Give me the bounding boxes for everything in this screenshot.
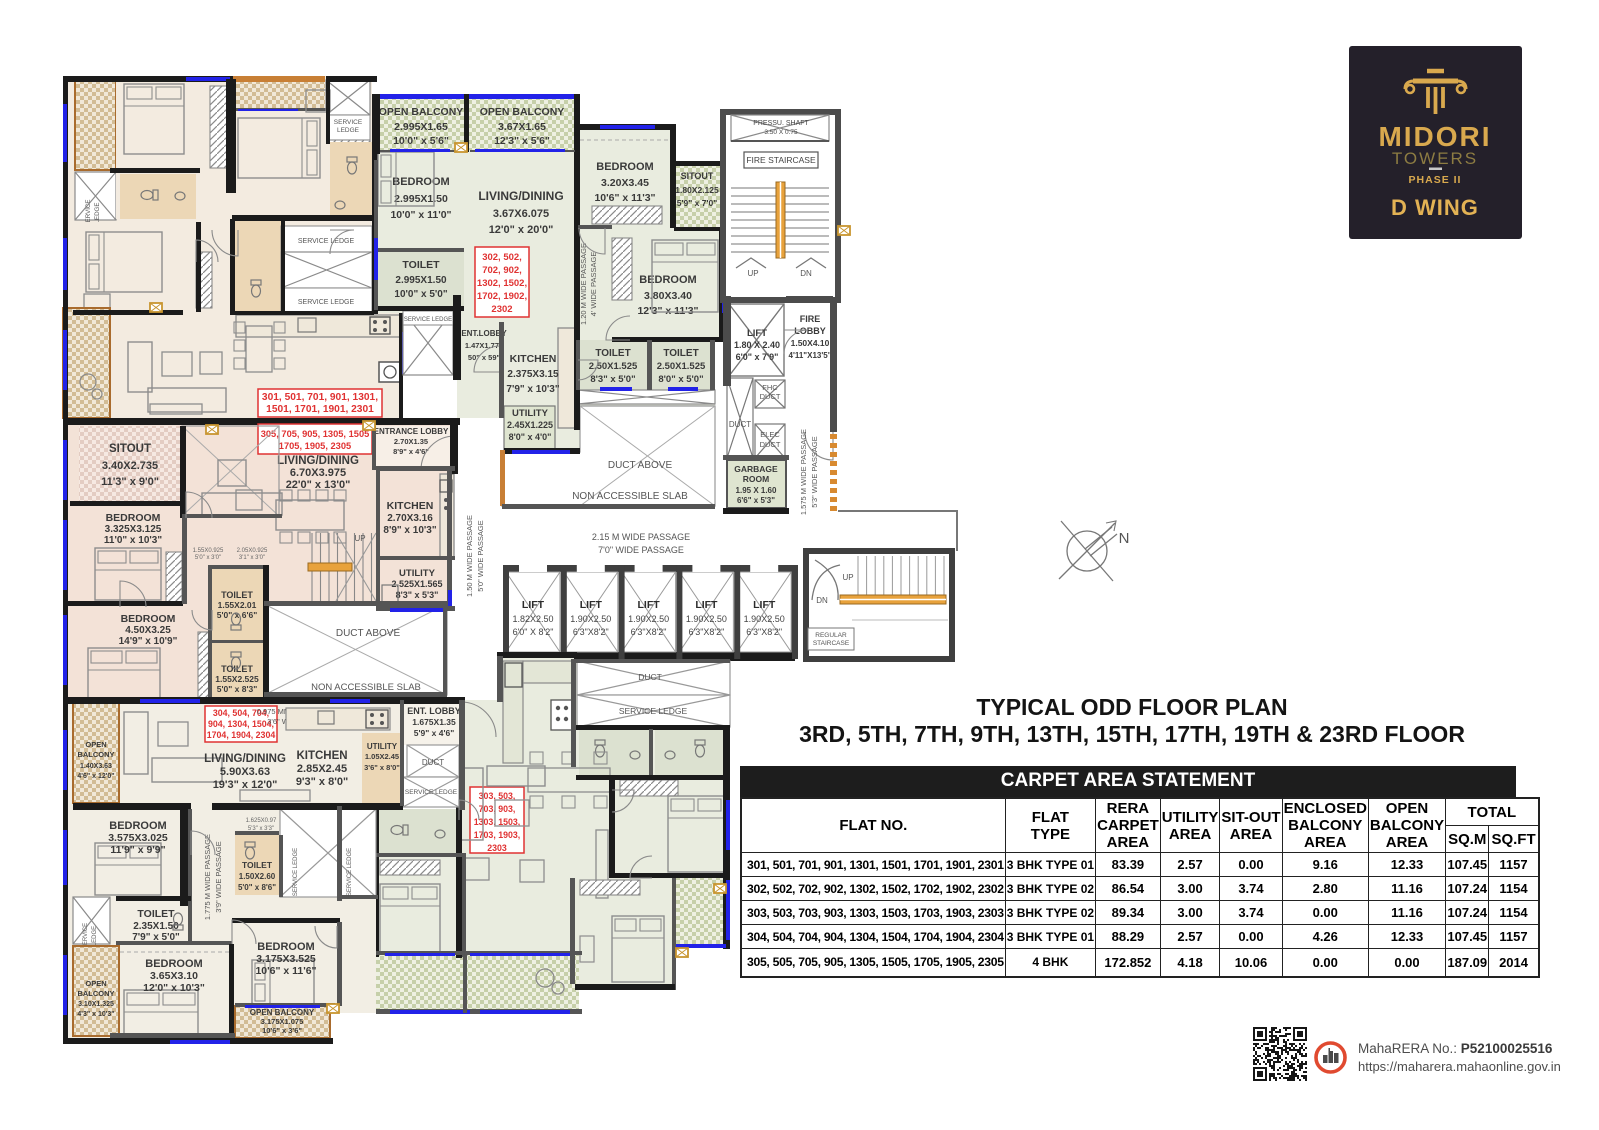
svg-text:11'3" x 9'0": 11'3" x 9'0"	[101, 476, 159, 488]
svg-text:6'0" x 7'9": 6'0" x 7'9"	[736, 352, 779, 362]
svg-text:3.175X1.075: 3.175X1.075	[261, 1017, 304, 1026]
svg-text:SERVICE LEDGE: SERVICE LEDGE	[405, 789, 458, 796]
svg-text:12'3" x 5'6": 12'3" x 5'6"	[494, 135, 550, 147]
svg-text:5'0" x 8'3": 5'0" x 8'3"	[217, 684, 257, 694]
svg-text:STAIRCASE: STAIRCASE	[813, 640, 850, 647]
svg-text:LOBBY: LOBBY	[794, 326, 826, 336]
svg-text:1.50 M WIDE PASSAGE: 1.50 M WIDE PASSAGE	[465, 515, 474, 597]
svg-text:TOWERS: TOWERS	[1392, 149, 1478, 168]
svg-text:BEDROOM: BEDROOM	[145, 958, 202, 970]
svg-text:DUCT: DUCT	[760, 440, 781, 449]
svg-text:1.20 M WIDE PASSAGE: 1.20 M WIDE PASSAGE	[579, 243, 588, 325]
svg-text:5'0" WIDE PASSAGE: 5'0" WIDE PASSAGE	[476, 520, 485, 591]
svg-text:UTILITY: UTILITY	[512, 408, 549, 419]
svg-text:1.90X2.50: 1.90X2.50	[570, 614, 611, 624]
svg-text:1.95 X 1.60: 1.95 X 1.60	[736, 486, 777, 495]
svg-text:DUCT: DUCT	[760, 392, 781, 401]
svg-text:4'3" x 10'3": 4'3" x 10'3"	[77, 1011, 114, 1018]
svg-text:10'6" x 11'6": 10'6" x 11'6"	[255, 965, 316, 977]
svg-text:KITCHEN: KITCHEN	[387, 500, 434, 512]
svg-text:1703, 1903,: 1703, 1903,	[474, 830, 520, 840]
svg-text:LIVING/DINING: LIVING/DINING	[277, 455, 359, 467]
svg-text:1.40X3.63: 1.40X3.63	[80, 763, 112, 770]
svg-text:BEDROOM: BEDROOM	[392, 176, 449, 188]
svg-text:2.35X1.50: 2.35X1.50	[133, 921, 179, 932]
svg-text:3.40X2.735: 3.40X2.735	[102, 460, 158, 472]
svg-text:LIVING/DINING: LIVING/DINING	[478, 189, 563, 203]
svg-text:12'0" x 10'3": 12'0" x 10'3"	[143, 982, 205, 994]
svg-text:N: N	[1119, 530, 1130, 547]
svg-text:12'0" x 20'0": 12'0" x 20'0"	[489, 224, 554, 236]
svg-text:DUCT ABOVE: DUCT ABOVE	[608, 460, 673, 471]
svg-text:LIFT: LIFT	[695, 599, 718, 611]
svg-text:7'0" WIDE PASSAGE: 7'0" WIDE PASSAGE	[598, 545, 684, 555]
svg-text:8'9" x 4'6": 8'9" x 4'6"	[393, 447, 429, 456]
svg-text:1.47X1.775: 1.47X1.775	[465, 341, 503, 350]
svg-text:1.80X2.125: 1.80X2.125	[675, 185, 719, 195]
svg-text:1.90X2.50: 1.90X2.50	[686, 614, 727, 624]
svg-text:1.675X1.35: 1.675X1.35	[412, 717, 456, 727]
svg-text:DUCT: DUCT	[729, 420, 751, 429]
svg-text:LIVING/DINING: LIVING/DINING	[204, 753, 286, 765]
svg-text:LIFT: LIFT	[580, 599, 603, 611]
svg-text:2.15 M WIDE PASSAGE: 2.15 M WIDE PASSAGE	[592, 532, 690, 542]
svg-text:REGULAR: REGULAR	[815, 632, 847, 639]
svg-text:1.82X2.50: 1.82X2.50	[512, 614, 553, 624]
svg-text:19'3" x 12'0": 19'3" x 12'0"	[213, 779, 278, 791]
svg-text:BEDROOM: BEDROOM	[121, 613, 176, 625]
svg-text:LIFT: LIFT	[638, 599, 661, 611]
svg-text:BEDROOM: BEDROOM	[109, 820, 166, 832]
svg-text:2302: 2302	[491, 304, 512, 315]
svg-text:6'3"X8'2": 6'3"X8'2"	[573, 627, 609, 637]
svg-text:LIFT: LIFT	[753, 599, 776, 611]
svg-text:3'1" x 3'0": 3'1" x 3'0"	[239, 555, 265, 561]
svg-text:DUCT ABOVE: DUCT ABOVE	[336, 628, 401, 639]
svg-text:6'3"X8'2": 6'3"X8'2"	[746, 627, 782, 637]
svg-text:FHC: FHC	[762, 383, 778, 392]
svg-text:11'9" x 9'9": 11'9" x 9'9"	[110, 844, 165, 856]
svg-text:5'9" x 7'0": 5'9" x 7'0"	[677, 198, 717, 208]
svg-text:10'0" x 5'0": 10'0" x 5'0"	[394, 289, 447, 300]
svg-text:3.67X1.65: 3.67X1.65	[498, 121, 546, 133]
svg-text:SERVICE LEDGE: SERVICE LEDGE	[298, 238, 355, 245]
svg-text:10'0" x 11'0": 10'0" x 11'0"	[390, 209, 451, 221]
svg-text:GARBAGE: GARBAGE	[734, 464, 778, 474]
svg-text:3.20X3.45: 3.20X3.45	[601, 177, 649, 189]
svg-text:ELEC: ELEC	[760, 430, 780, 439]
svg-text:50" x 59": 50" x 59"	[468, 353, 501, 362]
svg-text:TOILET: TOILET	[221, 590, 253, 600]
svg-text:8'9" x 10'3": 8'9" x 10'3"	[383, 525, 436, 536]
svg-text:302, 502,: 302, 502,	[482, 252, 522, 263]
svg-text:LEDGE: LEDGE	[94, 203, 101, 224]
svg-text:5'3" WIDE PASSAGE: 5'3" WIDE PASSAGE	[810, 436, 819, 507]
svg-text:305, 705, 905, 1305, 1505: 305, 705, 905, 1305, 1505	[261, 429, 370, 439]
svg-text:NON ACCESSIBLE SLAB: NON ACCESSIBLE SLAB	[311, 682, 421, 693]
svg-text:UP: UP	[747, 269, 758, 278]
svg-text:UTILITY: UTILITY	[367, 742, 398, 751]
svg-text:12'3" x 11'3": 12'3" x 11'3"	[637, 305, 698, 317]
svg-text:3'6" x 8'0": 3'6" x 8'0"	[364, 763, 400, 772]
svg-text:LEDGE: LEDGE	[337, 127, 360, 134]
svg-text:904, 1304, 1504,: 904, 1304, 1504,	[208, 719, 274, 729]
svg-text:703, 903,: 703, 903,	[479, 804, 516, 814]
svg-text:10'6" x 11'3": 10'6" x 11'3"	[594, 192, 655, 204]
svg-text:TOILET: TOILET	[402, 259, 440, 271]
svg-text:1.55X2.01: 1.55X2.01	[218, 600, 257, 610]
svg-text:6'6" x 5'3": 6'6" x 5'3"	[737, 496, 775, 505]
svg-text:BEDROOM: BEDROOM	[639, 274, 696, 286]
svg-text:2.375X3.15: 2.375X3.15	[507, 369, 559, 380]
svg-text:TOILET: TOILET	[663, 348, 698, 359]
svg-text:11'0" x 10'3": 11'0" x 10'3"	[104, 535, 162, 546]
svg-text:1.05X2.45: 1.05X2.45	[365, 752, 399, 761]
svg-text:OPEN BALCONY: OPEN BALCONY	[250, 1008, 315, 1017]
svg-text:6'0" X 8'2": 6'0" X 8'2"	[513, 627, 554, 637]
svg-text:5'0" x 8'6": 5'0" x 8'6"	[238, 883, 276, 892]
svg-text:3.80X3.40: 3.80X3.40	[644, 290, 692, 302]
svg-text:7'9" x 10'3": 7'9" x 10'3"	[506, 384, 559, 395]
svg-text:1702, 1902,: 1702, 1902,	[477, 291, 527, 302]
svg-text:TOILET: TOILET	[242, 860, 273, 870]
svg-text:SERVICE LEDGE: SERVICE LEDGE	[404, 317, 452, 323]
svg-text:TOILET: TOILET	[137, 908, 175, 920]
svg-text:1.55X0.925: 1.55X0.925	[193, 548, 224, 554]
svg-text:UTILITY: UTILITY	[399, 568, 436, 579]
svg-text:NON ACCESSIBLE SLAB: NON ACCESSIBLE SLAB	[572, 491, 688, 502]
svg-text:2.525X1.565: 2.525X1.565	[391, 579, 442, 589]
svg-text:BALCONY: BALCONY	[77, 989, 114, 998]
svg-text:PHASE II: PHASE II	[1409, 174, 1462, 186]
svg-text:TOILET: TOILET	[595, 348, 630, 359]
svg-text:BEDROOM: BEDROOM	[257, 941, 314, 953]
svg-text:22'0" x 13'0": 22'0" x 13'0"	[286, 479, 351, 491]
svg-text:DN: DN	[800, 269, 812, 278]
svg-text:ENTRANCE LOBBY: ENTRANCE LOBBY	[374, 427, 449, 436]
svg-text:2.70X1.35: 2.70X1.35	[394, 437, 428, 446]
svg-text:2.995X1.65: 2.995X1.65	[394, 121, 448, 133]
svg-text:1.50X2.60: 1.50X2.60	[239, 872, 276, 881]
svg-text:KITCHEN: KITCHEN	[510, 353, 557, 365]
svg-text:SERVICE LEDGE: SERVICE LEDGE	[293, 848, 299, 896]
svg-text:DUCT: DUCT	[638, 672, 662, 682]
svg-text:1.80 X 2.40: 1.80 X 2.40	[734, 340, 780, 350]
svg-text:BEDROOM: BEDROOM	[596, 161, 653, 173]
svg-text:UP: UP	[842, 573, 853, 582]
svg-text:ROOM: ROOM	[743, 474, 769, 484]
svg-text:2.995X1.50: 2.995X1.50	[395, 275, 447, 286]
svg-text:1.50X4.10: 1.50X4.10	[791, 338, 830, 348]
svg-text:ENT. LOBBY: ENT. LOBBY	[407, 706, 461, 716]
svg-text:8'0" x 5'0": 8'0" x 5'0"	[658, 374, 703, 385]
svg-text:DUCT: DUCT	[422, 758, 444, 767]
svg-text:2.995X1.50: 2.995X1.50	[394, 193, 448, 205]
svg-text:BEDROOM: BEDROOM	[106, 512, 161, 524]
svg-text:1501, 1701, 1901, 2301: 1501, 1701, 1901, 2301	[266, 404, 374, 415]
svg-text:10'0" x 5'6": 10'0" x 5'6"	[393, 135, 449, 147]
svg-text:OPEN BALCONY: OPEN BALCONY	[480, 106, 565, 118]
svg-text:3.325X3.125: 3.325X3.125	[105, 524, 162, 535]
svg-text:1704, 1904, 2304: 1704, 1904, 2304	[207, 730, 276, 740]
svg-text:4'11"X13'5": 4'11"X13'5"	[789, 351, 832, 360]
svg-text:1705, 1905, 2305: 1705, 1905, 2305	[279, 441, 351, 451]
svg-text:BALCONY: BALCONY	[77, 750, 114, 759]
svg-text:2.05X0.925: 2.05X0.925	[237, 548, 268, 554]
svg-text:DN: DN	[816, 596, 828, 605]
svg-text:6'3"X8'2": 6'3"X8'2"	[688, 627, 724, 637]
svg-text:2.70X3.16: 2.70X3.16	[387, 513, 433, 524]
svg-text:LEDGE: LEDGE	[92, 926, 98, 946]
svg-text:3.575X3.025: 3.575X3.025	[108, 832, 168, 844]
svg-text:9'3" x 8'0": 9'3" x 8'0"	[296, 776, 348, 788]
svg-text:5.90X3.63: 5.90X3.63	[220, 766, 270, 778]
svg-text:SERVICE LEDGE: SERVICE LEDGE	[298, 299, 355, 306]
svg-text:2.50X1.525: 2.50X1.525	[589, 361, 638, 372]
svg-text:3.50 X 0.75: 3.50 X 0.75	[764, 129, 798, 136]
svg-text:6.70X3.975: 6.70X3.975	[290, 467, 346, 479]
svg-text:LIFT: LIFT	[522, 599, 545, 611]
svg-text:UP: UP	[354, 534, 365, 543]
svg-text:SERVICE: SERVICE	[334, 119, 363, 126]
svg-text:1.575 M WIDE PASSAGE: 1.575 M WIDE PASSAGE	[799, 429, 808, 515]
svg-text:6'3"X8'2": 6'3"X8'2"	[631, 627, 667, 637]
svg-text:5'0" x 6'6": 5'0" x 6'6"	[217, 610, 257, 620]
svg-text:FIRE STAIRCASE: FIRE STAIRCASE	[746, 155, 816, 165]
svg-text:8'3" x 5'0": 8'3" x 5'0"	[590, 374, 635, 385]
svg-text:4'6" x 12'0": 4'6" x 12'0"	[77, 773, 114, 780]
svg-text:702, 902,: 702, 902,	[482, 265, 522, 276]
svg-text:4.50X3.25: 4.50X3.25	[125, 625, 171, 636]
svg-text:1302, 1502,: 1302, 1502,	[477, 278, 527, 289]
svg-text:OPEN: OPEN	[85, 979, 106, 988]
svg-text:8'0" x 4'0": 8'0" x 4'0"	[509, 432, 552, 442]
svg-text:OPEN: OPEN	[85, 740, 106, 749]
svg-text:MIDORI: MIDORI	[1378, 121, 1491, 152]
svg-text:2303: 2303	[487, 843, 507, 853]
svg-text:2.50X1.525: 2.50X1.525	[657, 361, 706, 372]
svg-text:3.65X3.10: 3.65X3.10	[150, 970, 198, 982]
svg-text:5'0" x 3'0": 5'0" x 3'0"	[195, 555, 221, 561]
svg-text:14'9" x 10'9": 14'9" x 10'9"	[119, 636, 178, 647]
svg-text:5'9" x 4'6": 5'9" x 4'6"	[414, 728, 454, 738]
svg-text:SITOUT: SITOUT	[109, 443, 151, 455]
svg-text:3.10X1.325: 3.10X1.325	[78, 1001, 114, 1008]
svg-text:D WING: D WING	[1391, 195, 1479, 220]
svg-text:4' WIDE PASSAGE: 4' WIDE PASSAGE	[589, 252, 598, 317]
svg-text:PRESSU. SHAFT: PRESSU. SHAFT	[753, 120, 809, 127]
svg-text:1.90X2.50: 1.90X2.50	[744, 614, 785, 624]
svg-text:301, 501, 701, 901, 1301,: 301, 501, 701, 901, 1301,	[262, 392, 378, 403]
svg-text:SERVICE LEDGE: SERVICE LEDGE	[619, 706, 688, 716]
svg-text:2.45X1.225: 2.45X1.225	[507, 420, 553, 430]
svg-text:10'6" x 3'6": 10'6" x 3'6"	[262, 1026, 302, 1035]
svg-text:1.90X2.50: 1.90X2.50	[628, 614, 669, 624]
svg-text:2.85X2.45: 2.85X2.45	[297, 763, 347, 775]
svg-text:1.775 M WIDE PASSAGE: 1.775 M WIDE PASSAGE	[203, 834, 212, 920]
svg-text:SITOUT: SITOUT	[681, 171, 714, 181]
svg-text:FIRE: FIRE	[800, 314, 821, 324]
svg-text:SERVICE LEDGE: SERVICE LEDGE	[347, 848, 353, 896]
svg-text:1.55X2.525: 1.55X2.525	[215, 674, 259, 684]
svg-text:1.625X0.97: 1.625X0.97	[246, 818, 277, 824]
svg-text:KITCHEN: KITCHEN	[296, 750, 347, 762]
svg-text:LIFT: LIFT	[747, 328, 767, 339]
svg-text:OPEN BALCONY: OPEN BALCONY	[379, 106, 464, 118]
svg-text:3.175X3.525: 3.175X3.525	[256, 953, 316, 965]
svg-text:3.67X6.075: 3.67X6.075	[493, 208, 549, 220]
svg-text:8'3" x 5'3": 8'3" x 5'3"	[396, 590, 439, 600]
